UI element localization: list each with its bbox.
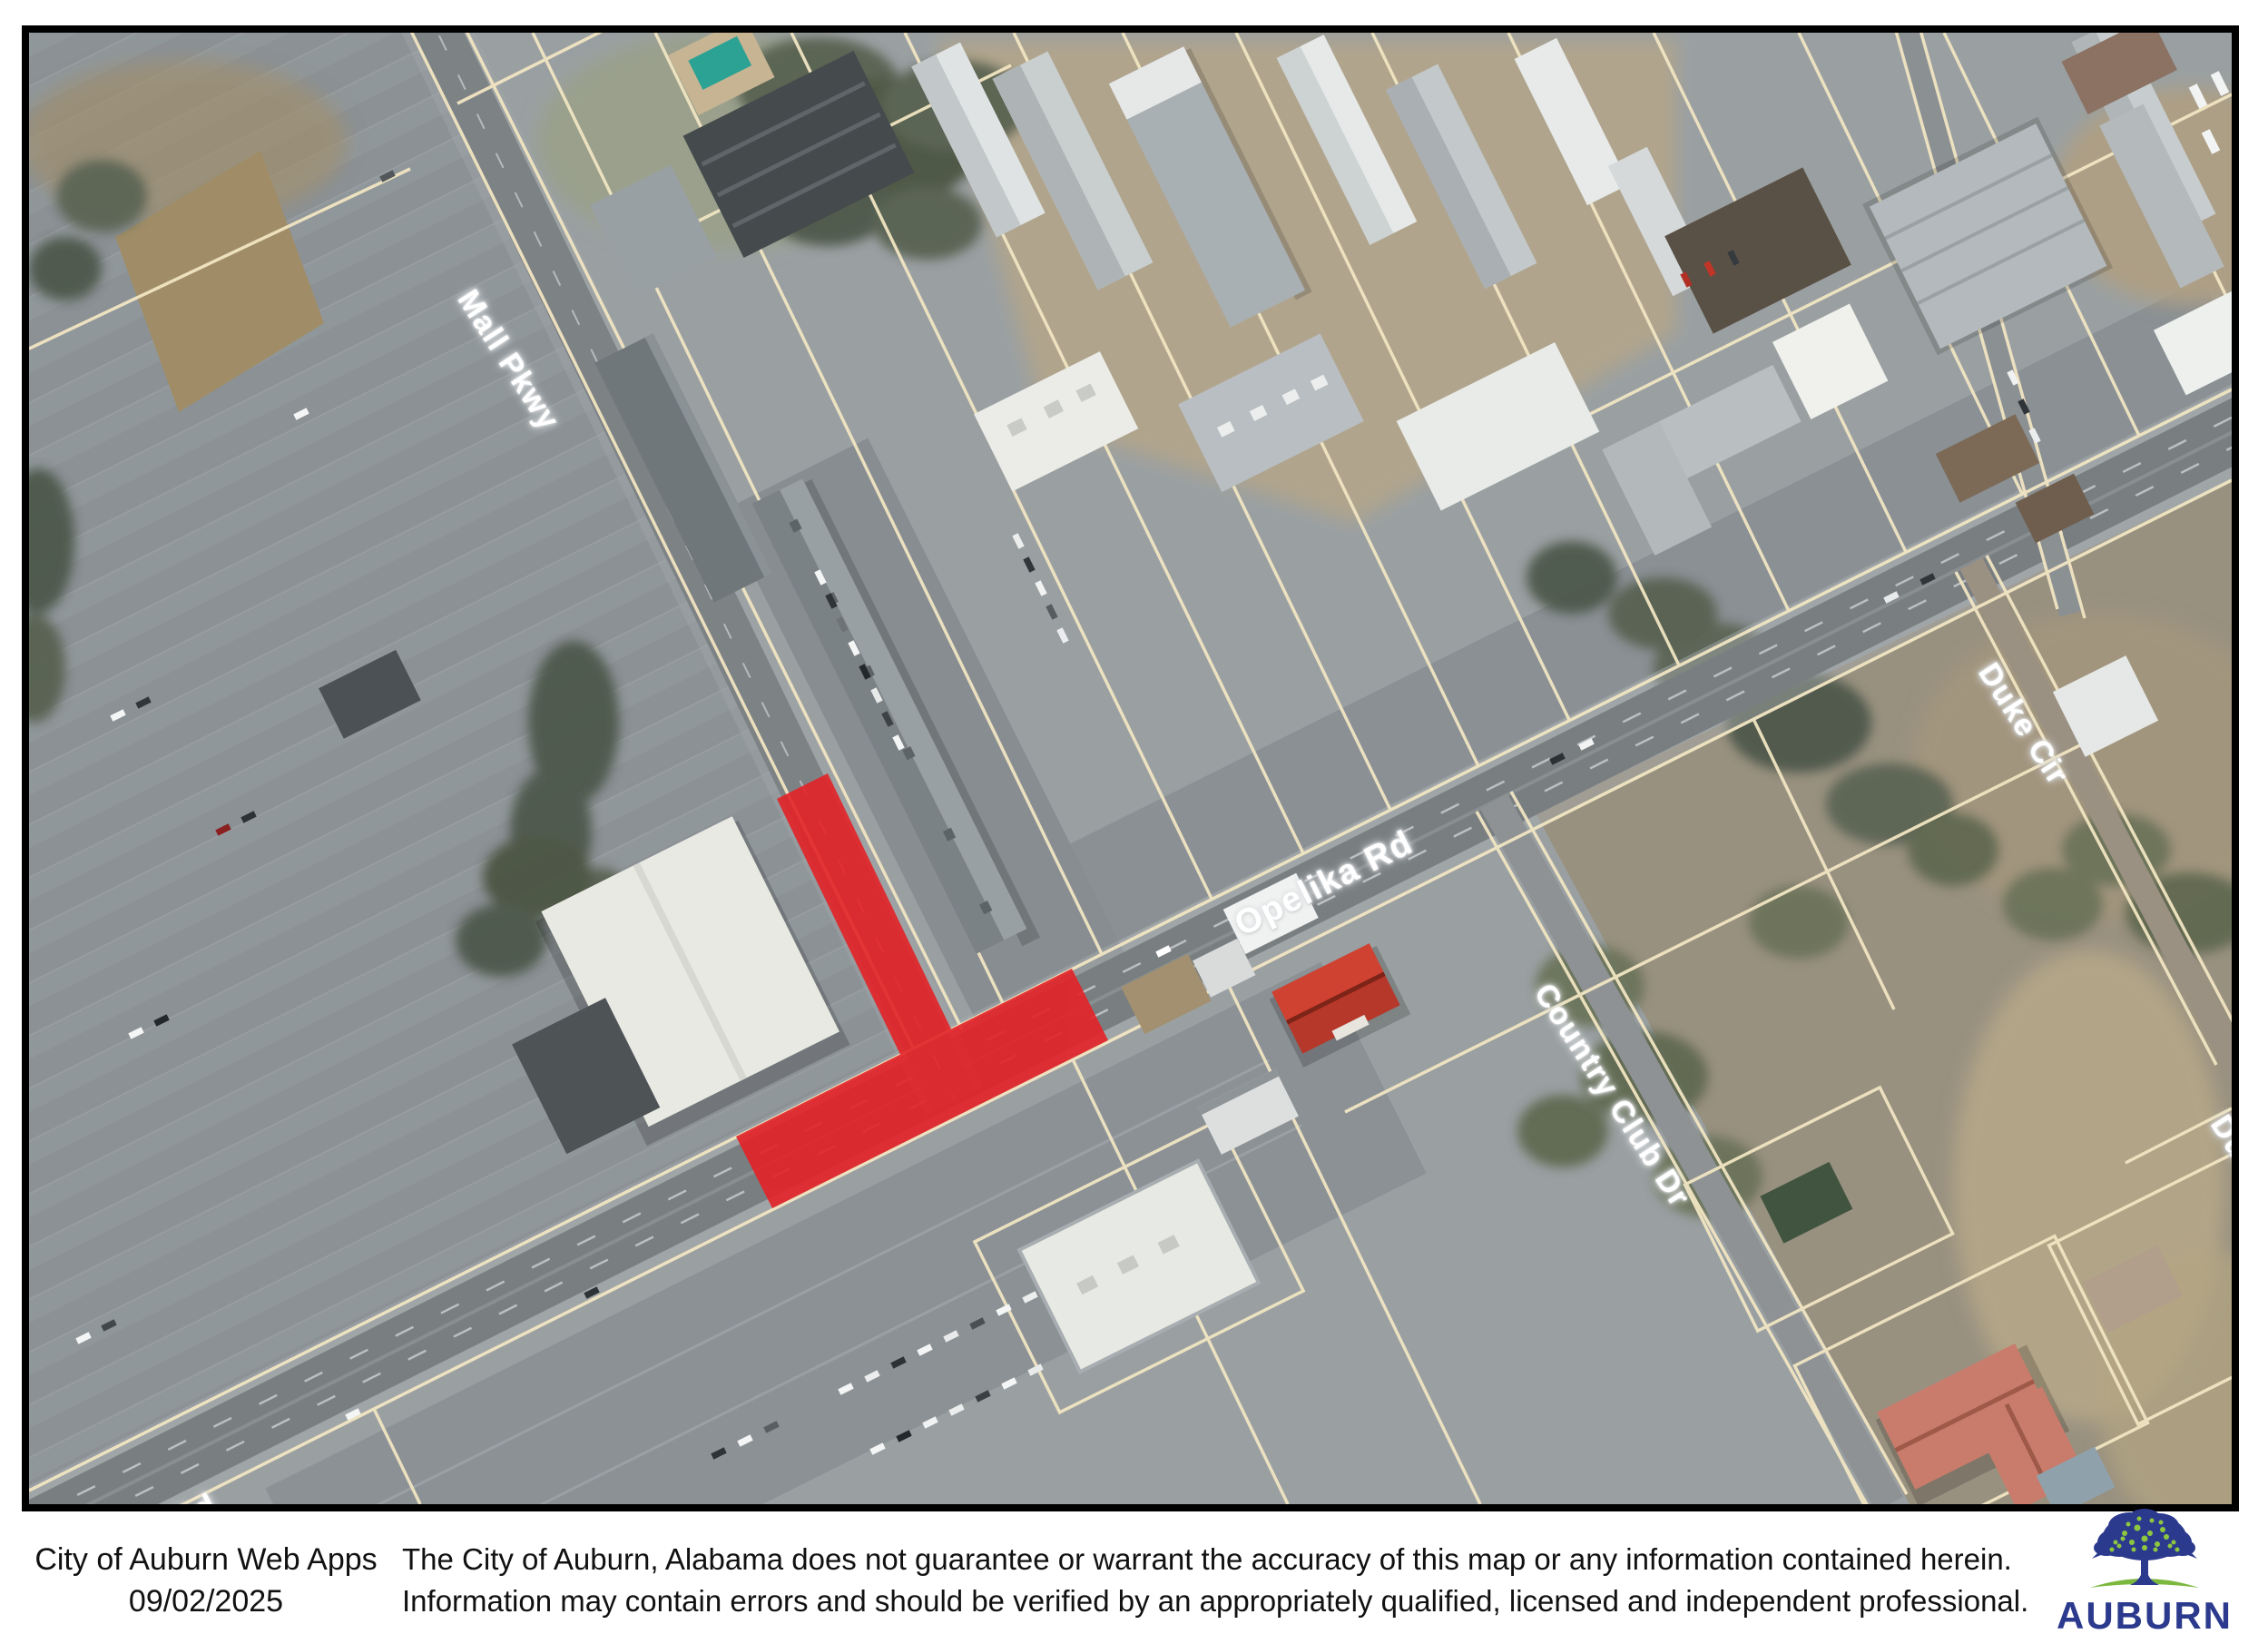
auburn-logo: AUBURN [2040, 1506, 2249, 1634]
aerial-imagery [29, 33, 2232, 1504]
footer-disclaimer: The City of Auburn, Alabama does not gua… [402, 1539, 2036, 1622]
map-export-page: Mall Pkwy Opelika Rd Country Club Dr Duk… [0, 0, 2268, 1634]
map-viewport[interactable]: Mall Pkwy Opelika Rd Country Club Dr Duk… [29, 33, 2232, 1504]
disclaimer-line-1: The City of Auburn, Alabama does not gua… [402, 1539, 2036, 1580]
footer-source-block: City of Auburn Web Apps 09/02/2025 [25, 1539, 387, 1622]
map-footer: City of Auburn Web Apps 09/02/2025 The C… [0, 1511, 2268, 1634]
map-date: 09/02/2025 [25, 1580, 387, 1622]
map-frame: Mall Pkwy Opelika Rd Country Club Dr Duk… [22, 25, 2239, 1511]
disclaimer-line-2: Information may contain errors and shoul… [402, 1580, 2036, 1622]
auburn-logo-wordmark: AUBURN [2040, 1594, 2249, 1634]
auburn-tree-icon [2043, 1506, 2246, 1590]
app-title: City of Auburn Web Apps [25, 1539, 387, 1580]
